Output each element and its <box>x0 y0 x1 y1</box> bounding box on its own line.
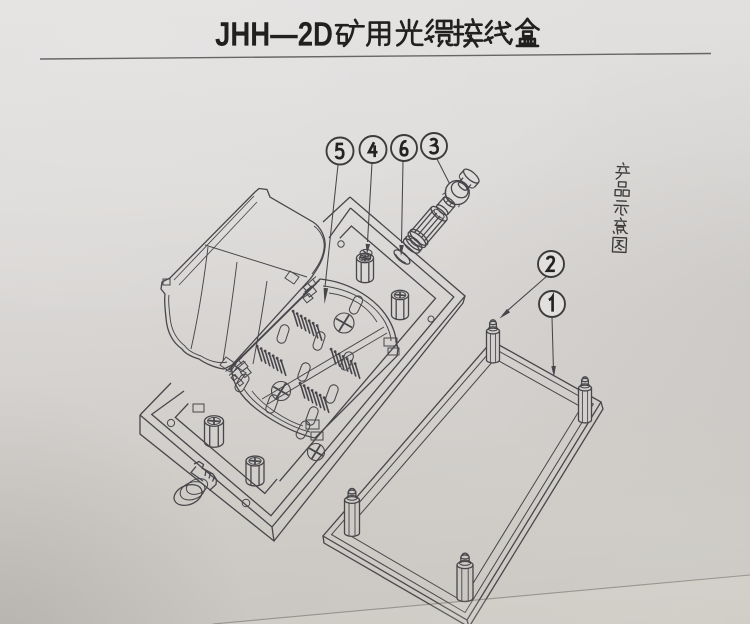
svg-text:JHH—2D: JHH—2D <box>215 16 333 54</box>
